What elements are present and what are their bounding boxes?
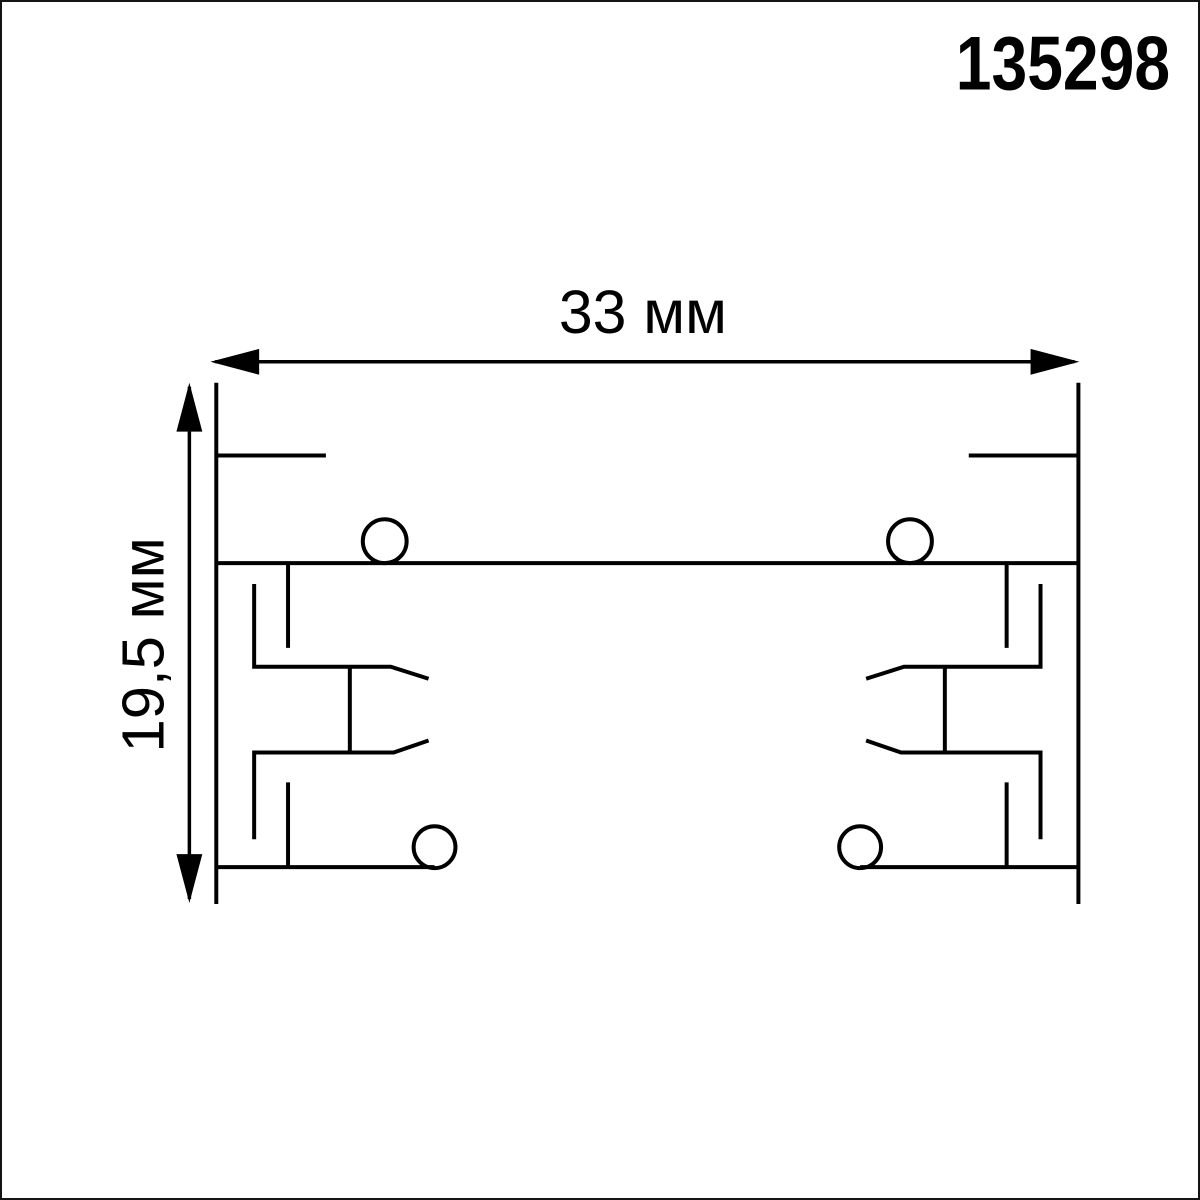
width-dimension-arrow-right-icon	[1031, 349, 1080, 375]
upper-conductor-circle	[363, 519, 407, 563]
width-dimension-arrow-left-icon	[210, 349, 259, 375]
contact-slot-upper	[866, 584, 1040, 679]
height-dimension-label: 19,5 мм	[109, 537, 176, 752]
technical-drawing-svg: 135298 33 мм 19,5 мм	[2, 2, 1198, 1198]
height-dimension-arrow-top-icon	[176, 383, 202, 432]
profile-cross-section	[216, 383, 1078, 904]
lower-conductor-circle	[414, 826, 456, 868]
contact-slot-upper	[254, 584, 428, 679]
lower-conductor-circle	[839, 826, 881, 868]
width-dimension-label: 33 мм	[559, 278, 727, 346]
drawing-canvas: 135298 33 мм 19,5 мм	[0, 0, 1200, 1200]
width-dimension: 33 мм	[210, 278, 1079, 375]
contact-slot-lower	[866, 741, 1040, 840]
contact-slot-lower	[254, 741, 428, 840]
article-number: 135298	[956, 22, 1170, 107]
upper-conductor-circle	[888, 519, 932, 563]
height-dimension: 19,5 мм	[109, 383, 202, 903]
profile-left-half	[216, 383, 455, 904]
profile-right-half	[839, 383, 1078, 904]
height-dimension-arrow-bottom-icon	[176, 854, 202, 903]
